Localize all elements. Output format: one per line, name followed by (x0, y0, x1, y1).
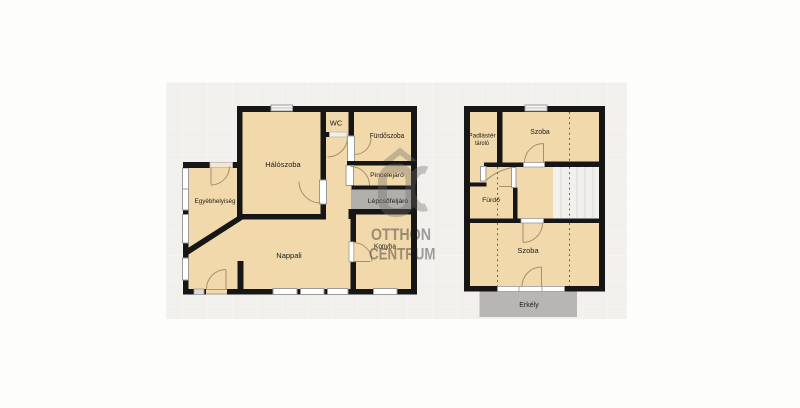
svg-text:CENTRUM: CENTRUM (369, 245, 436, 263)
svg-text:Erkély: Erkély (519, 302, 539, 309)
svg-text:OTTHON: OTTHON (371, 226, 431, 244)
svg-text:tároló: tároló (475, 140, 489, 147)
svg-text:Szoba: Szoba (530, 127, 550, 136)
svg-text:Nappali: Nappali (276, 251, 302, 260)
svg-text:Hálószoba: Hálószoba (265, 160, 301, 169)
svg-text:Fürdőszoba: Fürdőszoba (370, 131, 405, 140)
svg-text:Egyébhelyiség: Egyébhelyiség (195, 198, 236, 205)
svg-text:Lépcsőfeljáró: Lépcsőfeljáró (368, 198, 409, 205)
svg-text:Padlástér: Padlástér (468, 133, 496, 140)
svg-text:Fürdő: Fürdő (482, 197, 500, 204)
svg-text:Szoba: Szoba (517, 246, 539, 255)
svg-text:WC: WC (330, 119, 343, 128)
